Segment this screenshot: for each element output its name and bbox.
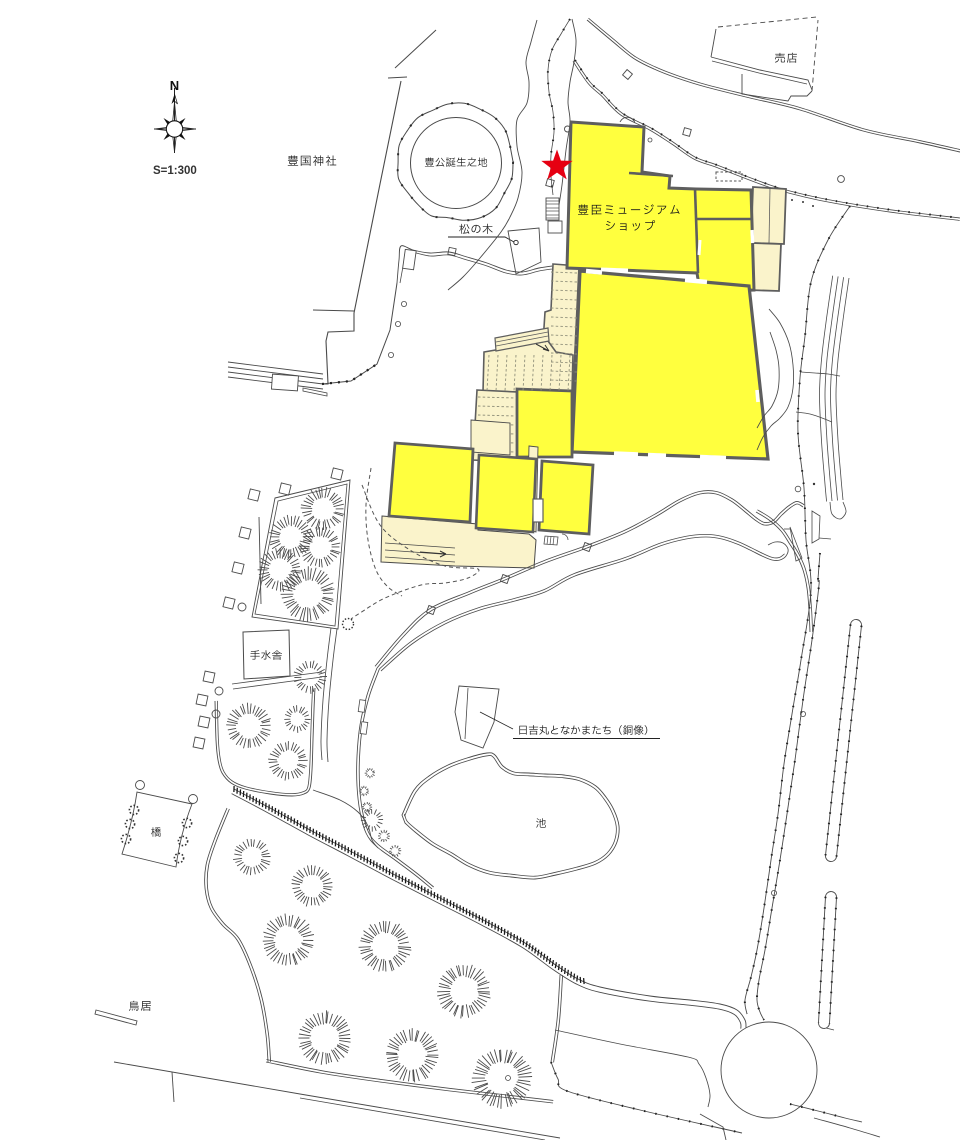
svg-text:S=1:300: S=1:300 [153, 165, 197, 177]
svg-text:N: N [170, 78, 179, 93]
